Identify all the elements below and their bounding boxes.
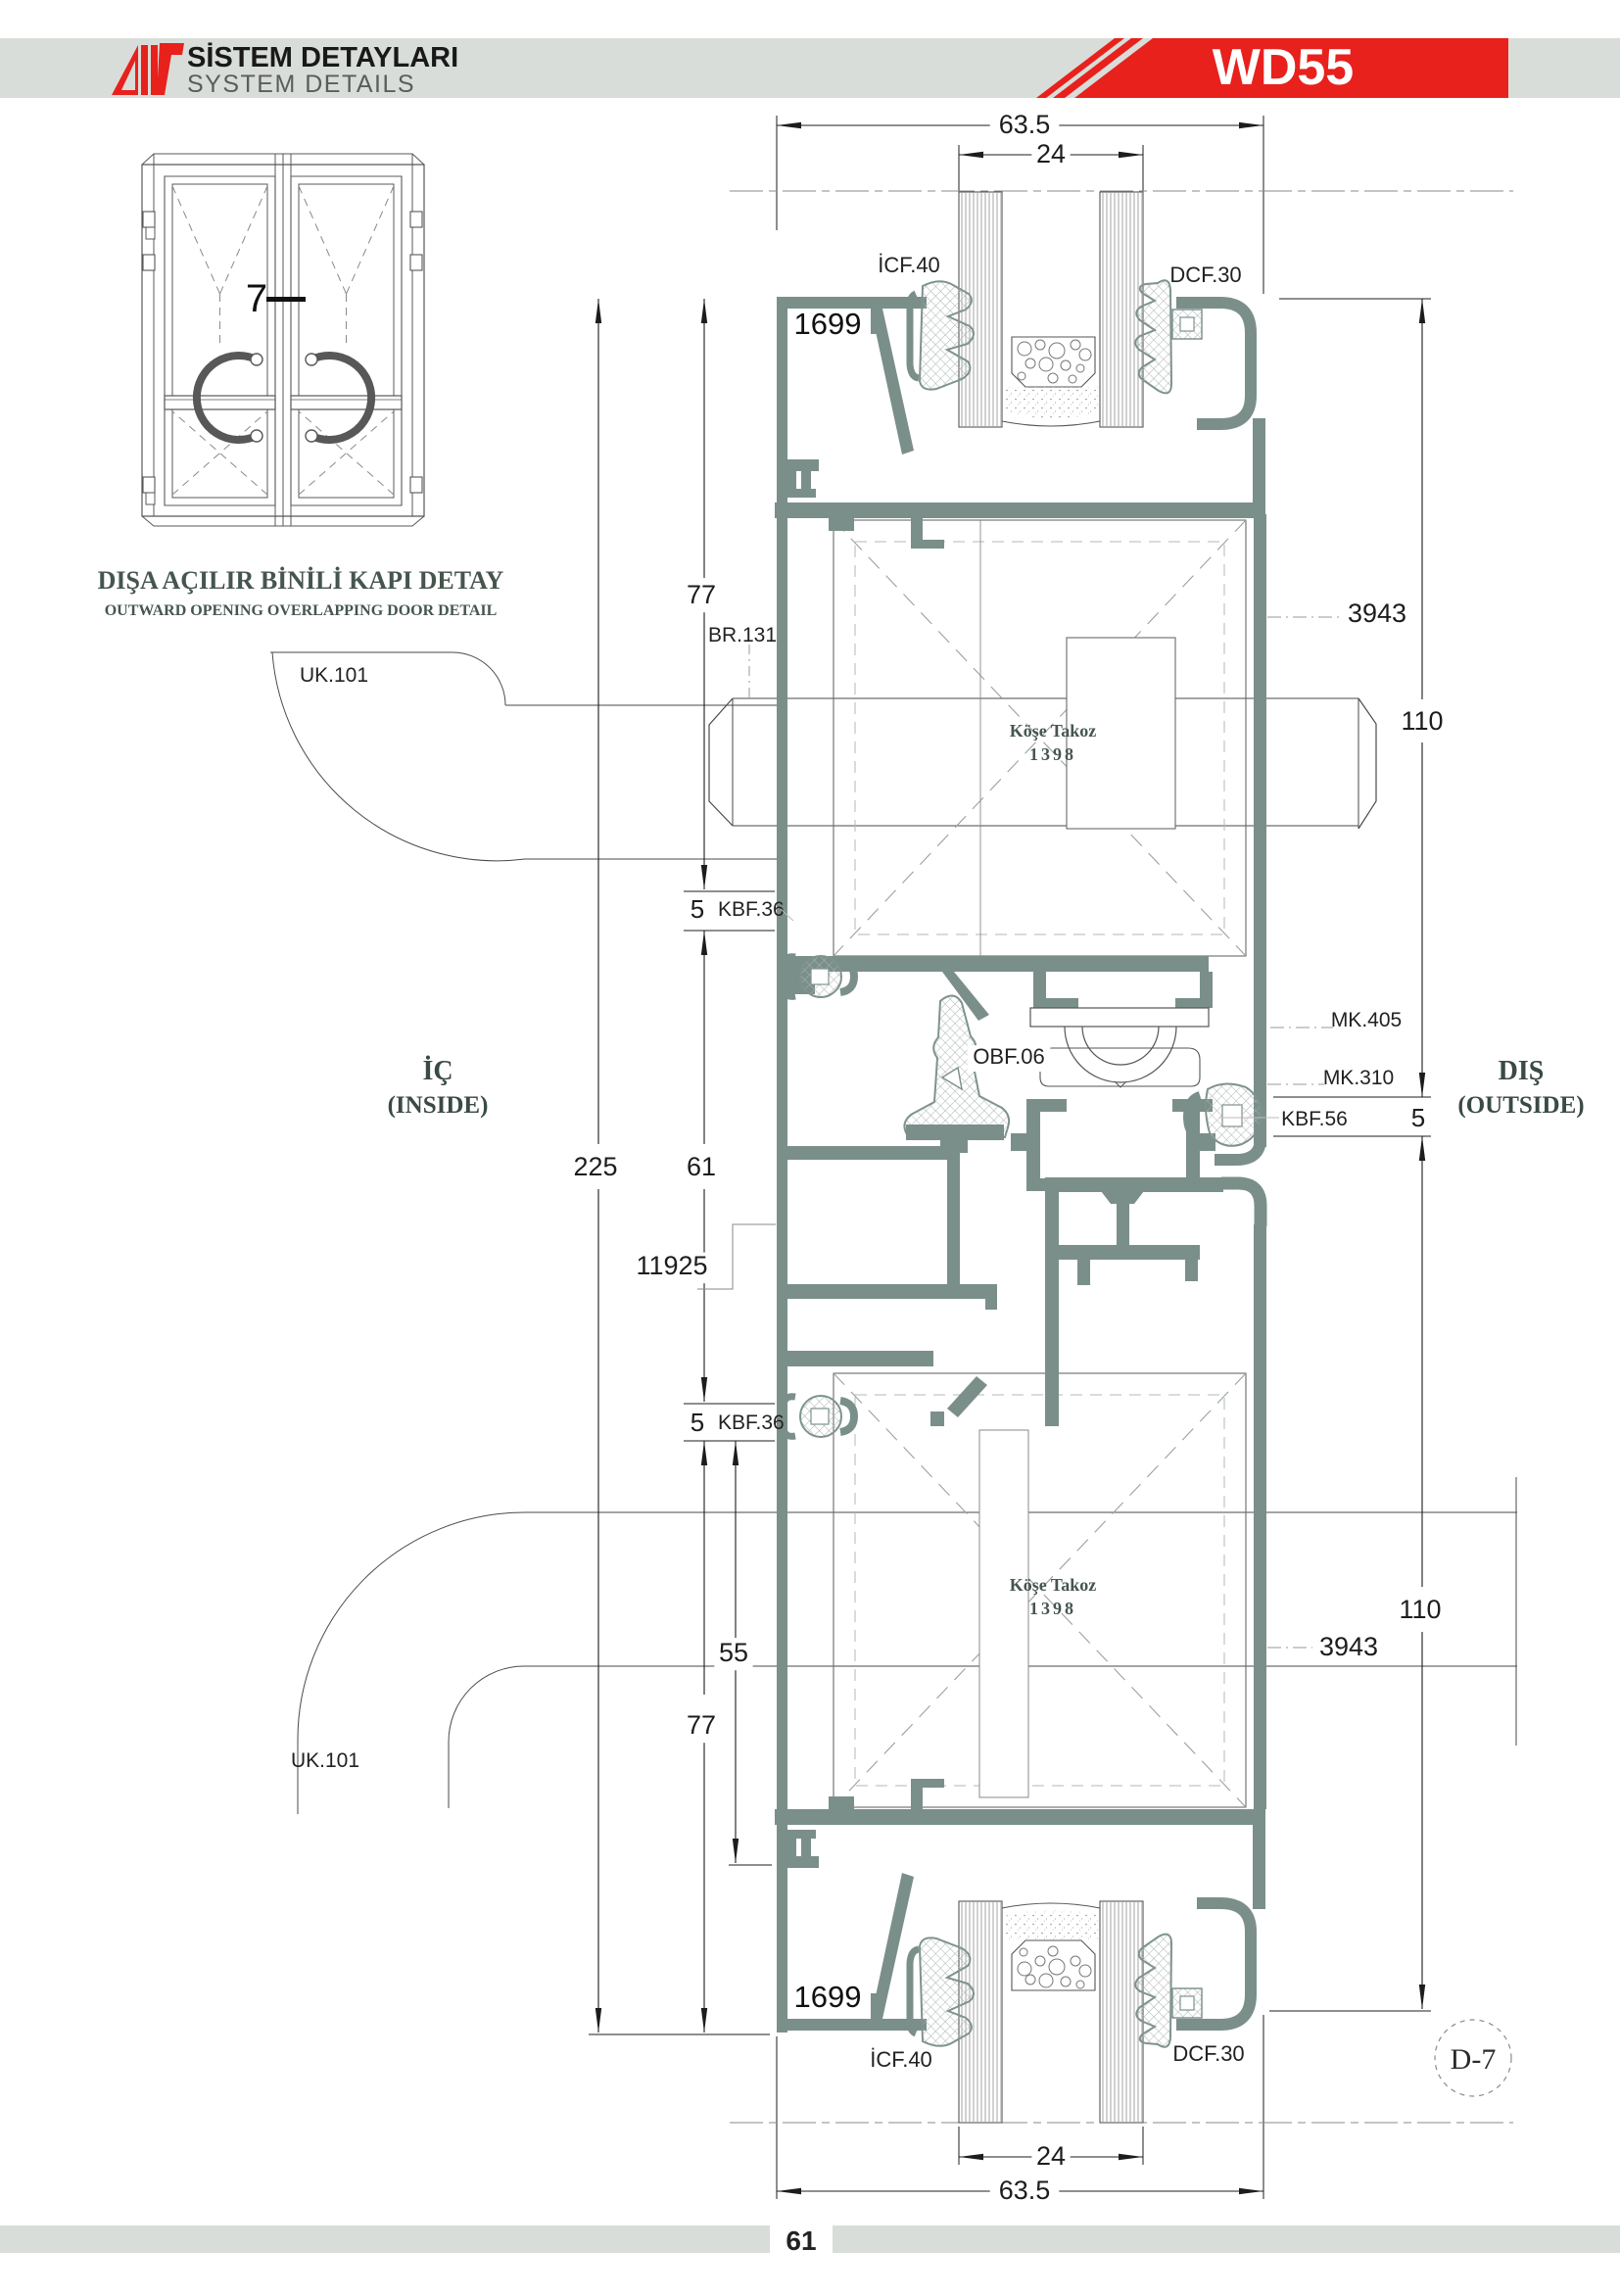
svg-text:110: 110 bbox=[1399, 1595, 1441, 1624]
svg-text:İCF.40: İCF.40 bbox=[870, 2047, 932, 2072]
svg-text:11925: 11925 bbox=[636, 1251, 707, 1280]
svg-text:63.5: 63.5 bbox=[999, 2176, 1051, 2205]
svg-text:MK.405: MK.405 bbox=[1331, 1009, 1402, 1031]
svg-text:1398: 1398 bbox=[1029, 1599, 1076, 1618]
svg-text:110: 110 bbox=[1401, 706, 1443, 736]
svg-text:(INSIDE): (INSIDE) bbox=[388, 1092, 489, 1119]
svg-text:D-7: D-7 bbox=[1451, 2043, 1497, 2076]
svg-text:KBF.56: KBF.56 bbox=[1281, 1108, 1348, 1130]
svg-text:77: 77 bbox=[687, 580, 716, 609]
svg-text:UK.101: UK.101 bbox=[300, 664, 368, 687]
svg-text:61: 61 bbox=[786, 2225, 816, 2256]
svg-text:MK.310: MK.310 bbox=[1323, 1067, 1394, 1089]
svg-text:KBF.36: KBF.36 bbox=[718, 898, 785, 921]
svg-text:7: 7 bbox=[246, 277, 267, 320]
svg-text:WD55: WD55 bbox=[1213, 39, 1354, 96]
svg-text:1699: 1699 bbox=[794, 1980, 862, 2014]
svg-text:DCF.30: DCF.30 bbox=[1172, 2041, 1244, 2066]
svg-text:5: 5 bbox=[691, 894, 704, 924]
svg-text:SİSTEM DETAYLARI: SİSTEM DETAYLARI bbox=[187, 42, 458, 73]
svg-text:Köşe Takoz: Köşe Takoz bbox=[1010, 721, 1097, 741]
svg-text:3943: 3943 bbox=[1319, 1632, 1378, 1661]
svg-text:İCF.40: İCF.40 bbox=[878, 253, 940, 277]
svg-text:SYSTEM DETAILS: SYSTEM DETAILS bbox=[187, 71, 415, 98]
svg-text:UK.101: UK.101 bbox=[291, 1749, 359, 1772]
svg-text:İÇ: İÇ bbox=[422, 1056, 453, 1086]
svg-text:77: 77 bbox=[687, 1710, 716, 1740]
svg-text:1699: 1699 bbox=[794, 307, 862, 341]
svg-text:1398: 1398 bbox=[1029, 744, 1076, 764]
svg-text:BR.131: BR.131 bbox=[708, 624, 777, 646]
svg-text:OUTWARD OPENING OVERLAPPING DO: OUTWARD OPENING OVERLAPPING DOOR DETAIL bbox=[105, 602, 498, 619]
svg-text:5: 5 bbox=[1411, 1103, 1425, 1132]
svg-text:55: 55 bbox=[719, 1638, 748, 1667]
svg-text:24: 24 bbox=[1036, 2141, 1066, 2171]
svg-text:3943: 3943 bbox=[1348, 598, 1406, 628]
svg-text:5: 5 bbox=[691, 1408, 704, 1437]
svg-text:(OUTSIDE): (OUTSIDE) bbox=[1457, 1092, 1584, 1119]
svg-text:KBF.36: KBF.36 bbox=[718, 1411, 785, 1434]
svg-text:DIŞ: DIŞ bbox=[1499, 1056, 1545, 1086]
svg-text:DCF.30: DCF.30 bbox=[1169, 263, 1241, 287]
svg-text:Köşe Takoz: Köşe Takoz bbox=[1010, 1575, 1097, 1595]
svg-text:225: 225 bbox=[573, 1152, 617, 1181]
svg-text:DIŞA AÇILIR BİNİLİ KAPI DETAY: DIŞA AÇILIR BİNİLİ KAPI DETAY bbox=[98, 566, 504, 595]
svg-text:24: 24 bbox=[1036, 139, 1066, 168]
svg-text:61: 61 bbox=[687, 1152, 716, 1181]
svg-text:OBF.06: OBF.06 bbox=[973, 1044, 1044, 1069]
svg-text:63.5: 63.5 bbox=[999, 110, 1051, 139]
